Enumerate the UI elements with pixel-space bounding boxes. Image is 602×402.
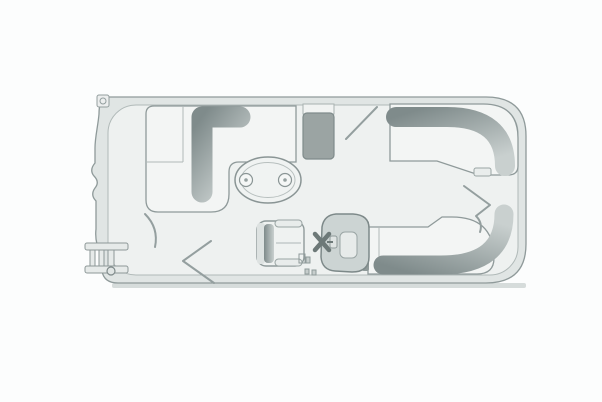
boat-floorplan-canvas: [0, 0, 602, 402]
chair-armrest-bottom: [275, 259, 302, 266]
fitting: [306, 257, 310, 263]
oval-table-with-cup-holders: [235, 157, 301, 203]
stern-port-cleat: [107, 267, 115, 275]
storage-body: [303, 113, 334, 159]
cup-holder-drain: [283, 178, 287, 182]
bow-storage-console: [303, 104, 334, 159]
fitting: [312, 270, 316, 275]
cleat-plate: [97, 95, 109, 107]
ladder-rail-top: [85, 243, 128, 250]
hull-shadow: [112, 283, 526, 288]
bow-corner-cleat: [97, 95, 109, 107]
console-instrument-panel: [340, 232, 357, 258]
chair-backrest: [264, 224, 274, 263]
fitting: [305, 269, 309, 274]
chair-armrest-top: [275, 220, 302, 227]
floorplan-svg: [0, 0, 602, 402]
stern-top-end-cap: [474, 168, 491, 176]
captains-chair: [257, 220, 304, 266]
wheel-hub: [319, 239, 325, 245]
chair-back-outer: [257, 223, 265, 264]
cup-holder-drain: [244, 178, 248, 182]
